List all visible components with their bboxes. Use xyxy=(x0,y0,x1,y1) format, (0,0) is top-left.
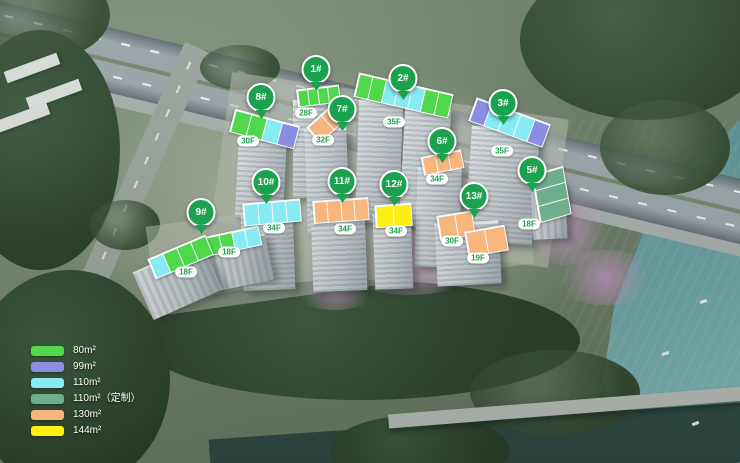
pin-pointer-icon xyxy=(336,194,348,209)
legend-label: 144m² xyxy=(73,426,101,436)
legend-swatch-110 xyxy=(31,378,64,388)
pin-badge: 10# xyxy=(252,168,281,197)
unit-cell-130 xyxy=(485,226,507,252)
floor-label-9a: 18F xyxy=(218,247,240,258)
legend-label: 130m² xyxy=(73,410,101,420)
unit-cell-130 xyxy=(314,202,328,223)
legend-item: 99m² xyxy=(31,359,141,375)
legend-label: 110m²（定制） xyxy=(73,394,141,404)
pin-badge: 3# xyxy=(489,89,518,118)
floor-label-6: 34F xyxy=(426,174,448,185)
floor-label-1: 28F xyxy=(295,108,317,119)
pin-pointer-icon xyxy=(526,183,538,198)
legend-swatch-130 xyxy=(31,410,64,420)
tree-cluster xyxy=(470,350,640,435)
pin-badge: 6# xyxy=(428,127,457,156)
floor-label-8: 30F xyxy=(237,136,259,147)
pin-pointer-icon xyxy=(310,82,322,97)
legend-swatch-99 xyxy=(31,362,64,372)
pin-badge: 13# xyxy=(460,182,489,211)
pin-pointer-icon xyxy=(468,209,480,224)
legend-swatch-80 xyxy=(31,346,64,356)
legend-item: 130m² xyxy=(31,407,141,423)
legend-label: 80m² xyxy=(73,346,96,356)
legend-label: 110m² xyxy=(73,378,101,388)
floor-label-12: 34F xyxy=(385,226,407,237)
floor-label-13b: 19F xyxy=(467,253,489,264)
pin-badge: 11# xyxy=(328,167,357,196)
floor-label-3: 35F xyxy=(491,146,513,157)
legend-item: 144m² xyxy=(31,423,141,439)
site-plan-rendering: 28F 35F 35F 18F 34F 32F 30F 18F 18F 34F … xyxy=(0,0,740,463)
pin-badge: 9# xyxy=(187,198,216,227)
pin-pointer-icon xyxy=(195,225,207,240)
pin-badge: 2# xyxy=(389,64,418,93)
unit-size-legend: 80m² 99m² 110m² 110m²（定制） 130m² 144m² xyxy=(31,343,141,439)
pin-badge: 5# xyxy=(518,156,547,185)
floor-label-2: 35F xyxy=(383,117,405,128)
legend-item: 110m²（定制） xyxy=(31,391,141,407)
pin-pointer-icon xyxy=(388,197,400,212)
legend-swatch-144 xyxy=(31,426,64,436)
unit-cell-110 xyxy=(286,200,301,221)
pin-pointer-icon xyxy=(255,110,267,125)
unit-cell-110 xyxy=(245,227,261,246)
pin-pointer-icon xyxy=(497,116,509,131)
floor-label-13a: 30F xyxy=(441,236,463,247)
pin-badge: 12# xyxy=(380,170,409,199)
legend-label: 99m² xyxy=(73,362,96,372)
pin-pointer-icon xyxy=(397,91,409,106)
legend-item: 80m² xyxy=(31,343,141,359)
pin-badge: 1# xyxy=(302,55,331,84)
pin-pointer-icon xyxy=(336,122,348,137)
pin-badge: 7# xyxy=(328,95,357,124)
pin-badge: 8# xyxy=(247,83,276,112)
legend-swatch-110-custom xyxy=(31,394,64,404)
pin-pointer-icon xyxy=(260,195,272,210)
flower-bed xyxy=(550,250,660,305)
floor-label-9b: 18F xyxy=(175,267,197,278)
pin-pointer-icon xyxy=(436,154,448,169)
floor-label-11: 34F xyxy=(334,224,356,235)
floor-label-5: 18F xyxy=(518,219,540,230)
legend-item: 110m² xyxy=(31,375,141,391)
floor-label-10: 34F xyxy=(263,223,285,234)
tree-cluster xyxy=(600,100,730,195)
